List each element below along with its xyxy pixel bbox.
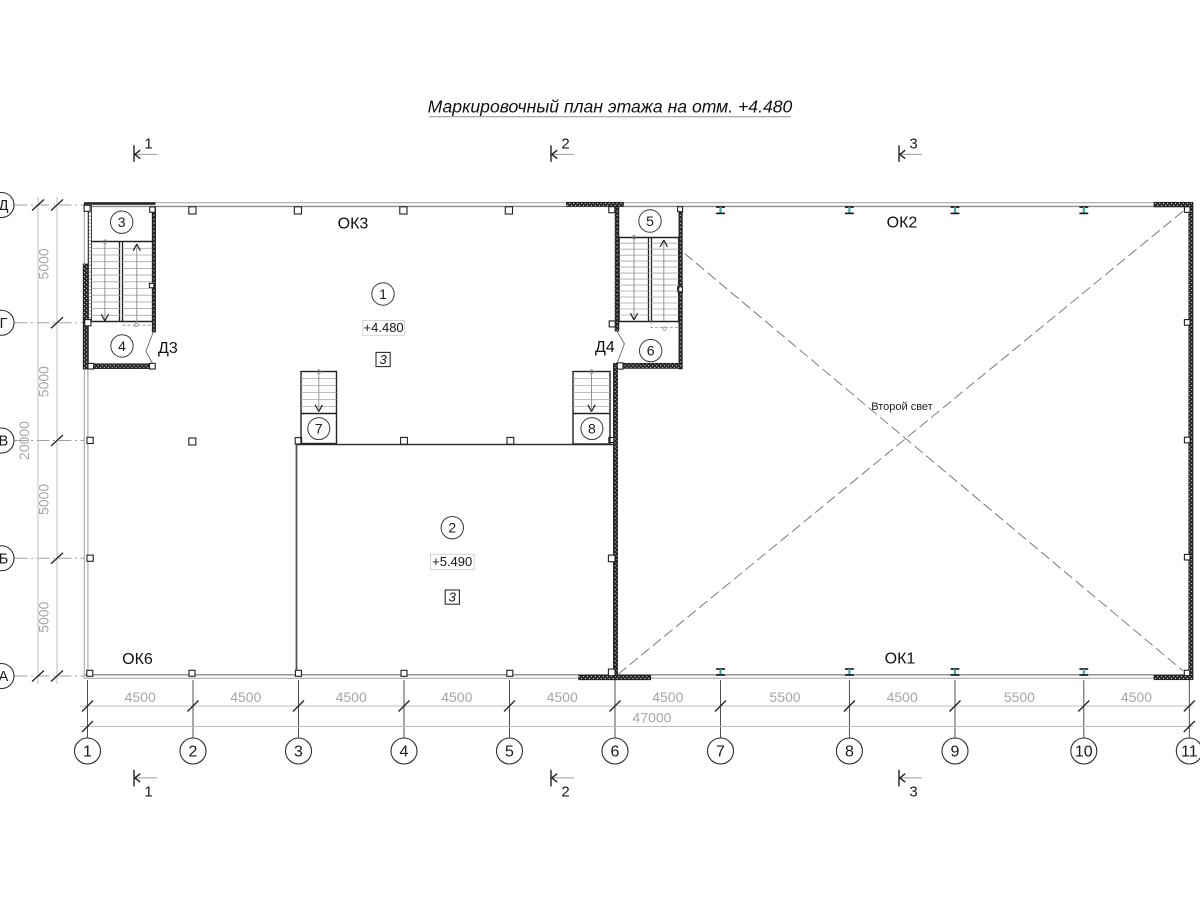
svg-text:+5.490: +5.490 — [432, 554, 472, 569]
svg-text:4500: 4500 — [125, 689, 156, 705]
svg-text:5000: 5000 — [36, 484, 52, 515]
svg-text:20000: 20000 — [16, 421, 32, 460]
svg-text:4500: 4500 — [887, 689, 918, 705]
svg-text:1: 1 — [83, 744, 92, 761]
svg-text:ОК6: ОК6 — [122, 651, 153, 668]
svg-text:ОК1: ОК1 — [885, 650, 916, 667]
svg-text:8: 8 — [588, 421, 596, 437]
svg-text:4: 4 — [118, 338, 126, 354]
svg-text:3: 3 — [909, 784, 917, 801]
svg-text:1: 1 — [144, 135, 152, 152]
svg-text:Б: Б — [0, 551, 8, 567]
svg-text:4500: 4500 — [441, 689, 472, 705]
svg-text:8: 8 — [845, 744, 854, 761]
svg-text:5: 5 — [646, 213, 654, 229]
svg-text:Г: Г — [0, 316, 8, 332]
svg-text:7: 7 — [315, 421, 323, 437]
svg-text:5000: 5000 — [36, 248, 52, 279]
svg-text:2: 2 — [189, 744, 198, 761]
svg-text:6: 6 — [647, 343, 655, 359]
svg-text:3: 3 — [449, 590, 457, 605]
svg-text:ОК3: ОК3 — [338, 215, 369, 232]
svg-text:ОК2: ОК2 — [887, 215, 918, 232]
svg-text:4500: 4500 — [652, 689, 683, 705]
svg-text:4500: 4500 — [547, 689, 578, 705]
svg-text:Второй свет: Второй свет — [871, 401, 932, 413]
svg-text:5500: 5500 — [1004, 689, 1035, 705]
svg-text:Д: Д — [0, 198, 9, 214]
svg-text:11: 11 — [1181, 744, 1198, 761]
svg-text:3: 3 — [379, 352, 387, 367]
svg-text:1: 1 — [144, 784, 152, 801]
svg-text:Д4: Д4 — [595, 339, 615, 356]
svg-text:А: А — [0, 669, 9, 685]
svg-text:2: 2 — [448, 520, 456, 536]
svg-text:Д3: Д3 — [158, 340, 178, 357]
svg-text:5000: 5000 — [36, 366, 52, 397]
svg-text:4: 4 — [400, 744, 409, 761]
svg-text:3: 3 — [118, 214, 126, 230]
svg-text:2: 2 — [561, 135, 569, 152]
svg-text:4500: 4500 — [336, 689, 367, 705]
svg-text:7: 7 — [716, 744, 725, 761]
svg-text:6: 6 — [611, 744, 620, 761]
svg-text:2: 2 — [561, 784, 569, 801]
svg-text:+4.480: +4.480 — [364, 320, 404, 335]
svg-text:В: В — [0, 434, 8, 450]
svg-text:9: 9 — [951, 744, 960, 761]
svg-text:1: 1 — [379, 286, 387, 302]
svg-text:5: 5 — [505, 744, 514, 761]
svg-text:3: 3 — [294, 744, 303, 761]
svg-text:4500: 4500 — [230, 689, 261, 705]
svg-text:10: 10 — [1075, 744, 1093, 761]
svg-text:Маркировочный план этажа на от: Маркировочный план этажа на отм. +4.480 — [428, 97, 793, 117]
svg-text:47000: 47000 — [633, 709, 672, 725]
svg-text:3: 3 — [909, 135, 917, 152]
svg-text:5000: 5000 — [36, 601, 52, 632]
svg-text:5500: 5500 — [769, 689, 800, 705]
svg-text:4500: 4500 — [1121, 689, 1152, 705]
